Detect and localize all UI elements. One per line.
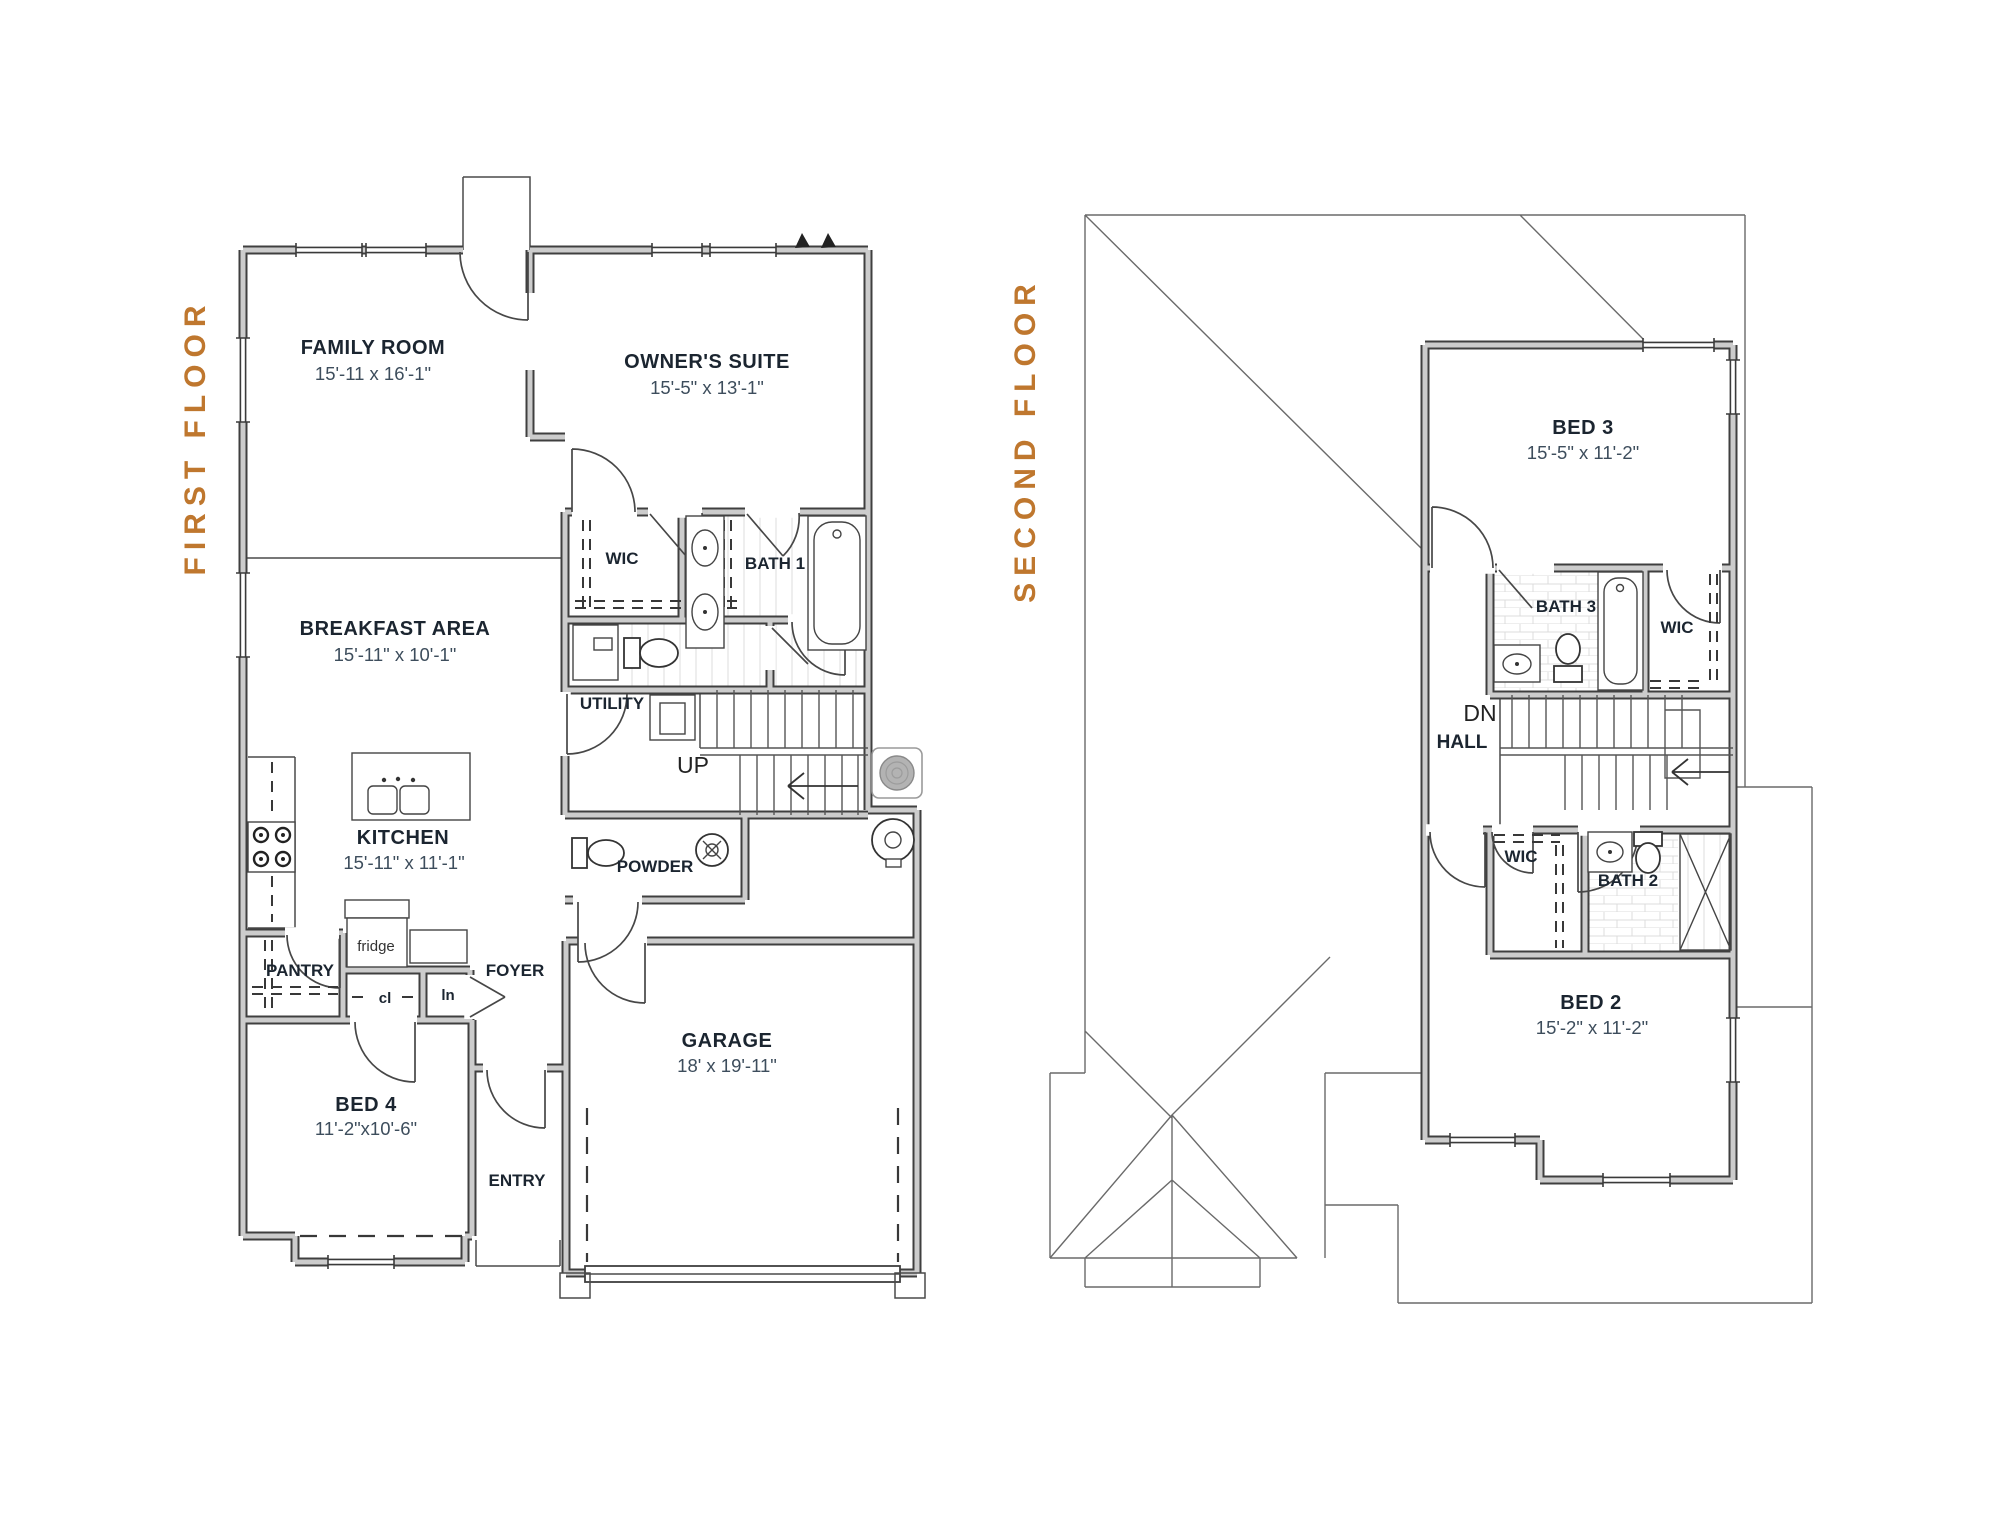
linen-label: ln <box>441 987 454 1004</box>
room-label-bath3: BATH 3 <box>1536 597 1596 616</box>
room-label-garage: GARAGE <box>682 1030 773 1052</box>
room-label-utility: UTILITY <box>580 694 645 713</box>
second-floor-title: SECOND FLOOR <box>1009 277 1042 603</box>
entry-porch-step <box>476 1240 560 1266</box>
room-dims-breakfast: 15'-11" x 10'-1" <box>334 644 457 665</box>
stairs-down-label: DN <box>1463 700 1496 726</box>
stairs-down-arrow <box>1672 759 1730 785</box>
fridge-label: fridge <box>357 938 395 955</box>
room-label-wic-right: WIC <box>1660 618 1693 637</box>
room-label-powder: POWDER <box>617 857 694 876</box>
room-dims-bed4: 11'-2"x10'-6" <box>315 1118 417 1139</box>
room-dims-bed3: 15'-5" x 11'-2" <box>1527 442 1639 463</box>
fridge-icon <box>345 900 409 967</box>
toilet-icon-water-closet <box>624 638 678 668</box>
room-label-owners-suite: OWNER'S SUITE <box>624 351 790 373</box>
floor-plan-canvas: FIRST FLOOR FAMILY ROOM 15'-11 x 16'-1" … <box>0 0 2003 1530</box>
stairs-up-label: UP <box>677 752 709 778</box>
ac-unit-icon <box>872 748 922 798</box>
pedestal-sink-icon <box>696 834 728 866</box>
room-dims-kitchen: 15'-11" x 11'-1" <box>343 852 464 873</box>
room-label-wic-left: WIC <box>1504 847 1537 866</box>
room-label-pantry: PANTRY <box>266 961 335 980</box>
bath3-sink-icon <box>1494 645 1540 682</box>
garage-door <box>560 1266 925 1298</box>
second-floor-plan: SECOND FLOOR BED 3 15'-5" x 11'-2" BATH … <box>1009 215 1812 1303</box>
patio-bumpout <box>463 177 530 250</box>
kitchen-island <box>352 753 470 820</box>
room-label-breakfast: BREAKFAST AREA <box>300 618 491 640</box>
stove-icon <box>248 822 295 872</box>
stairs-down <box>1500 695 1733 810</box>
room-label-wic1: WIC <box>605 549 638 568</box>
stairs-down-treads <box>1500 695 1733 810</box>
stairs-up <box>700 690 868 815</box>
room-label-bed2: BED 2 <box>1560 992 1621 1014</box>
first-floor-title: FIRST FLOOR <box>179 299 212 576</box>
room-label-bath1: BATH 1 <box>745 554 805 573</box>
stairs-up-arrow <box>788 773 858 799</box>
stairs-up-treads <box>700 690 868 815</box>
second-floor-windows <box>1450 338 1740 1187</box>
bath2-sink-icon <box>1588 832 1632 872</box>
room-label-entry: ENTRY <box>489 1171 547 1190</box>
second-floor-walls-inner <box>1425 345 1733 1180</box>
room-dims-owners-suite: 15'-5" x 13'-1" <box>650 377 764 398</box>
room-label-bed3: BED 3 <box>1552 417 1613 439</box>
second-floor-walls-outer <box>1425 345 1733 1180</box>
room-dims-garage: 18' x 19'-11" <box>677 1055 777 1076</box>
bath1-vanity <box>686 516 724 648</box>
bath3-tub-icon <box>1598 572 1643 690</box>
first-floor-plan: FIRST FLOOR FAMILY ROOM 15'-11 x 16'-1" … <box>179 177 925 1298</box>
room-label-bath2: BATH 2 <box>1598 871 1658 890</box>
room-dims-bed2: 15'-2" x 11'-2" <box>1536 1017 1648 1038</box>
room-label-hall: HALL <box>1437 732 1488 753</box>
second-floor-openings <box>1426 345 1733 1180</box>
room-label-foyer: FOYER <box>486 961 545 980</box>
room-dims-family: 15'-11 x 16'-1" <box>315 363 431 384</box>
room-label-bed4: BED 4 <box>335 1094 397 1116</box>
room-label-family: FAMILY ROOM <box>301 337 445 359</box>
cabinet <box>410 930 467 963</box>
floor-plan-page: FIRST FLOOR FAMILY ROOM 15'-11 x 16'-1" … <box>0 0 2003 1530</box>
washer-icon <box>650 695 695 740</box>
room-label-kitchen: KITCHEN <box>357 827 449 849</box>
water-heater-icon <box>872 819 914 867</box>
closet-label: cl <box>379 990 392 1007</box>
bathtub-icon <box>808 516 866 650</box>
bath2-toilet-icon <box>1634 832 1662 873</box>
laundry-box <box>573 625 618 680</box>
bath3-toilet-icon <box>1554 634 1582 682</box>
